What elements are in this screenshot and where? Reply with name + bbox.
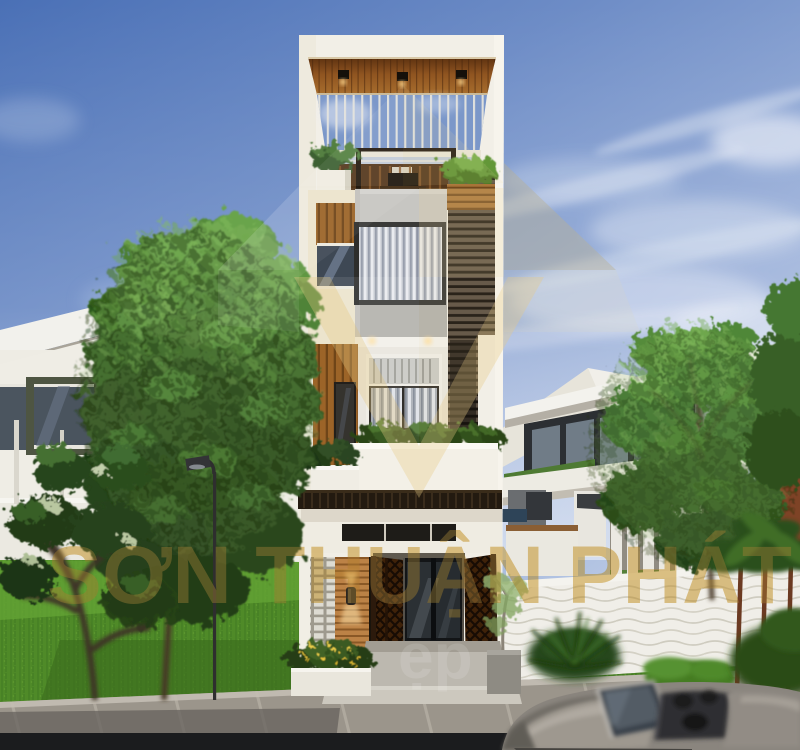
svg-text:ẹp: ẹp [398, 620, 473, 692]
svg-text:SƠN THUẬN PHÁT: SƠN THUẬN PHÁT [47, 530, 792, 621]
